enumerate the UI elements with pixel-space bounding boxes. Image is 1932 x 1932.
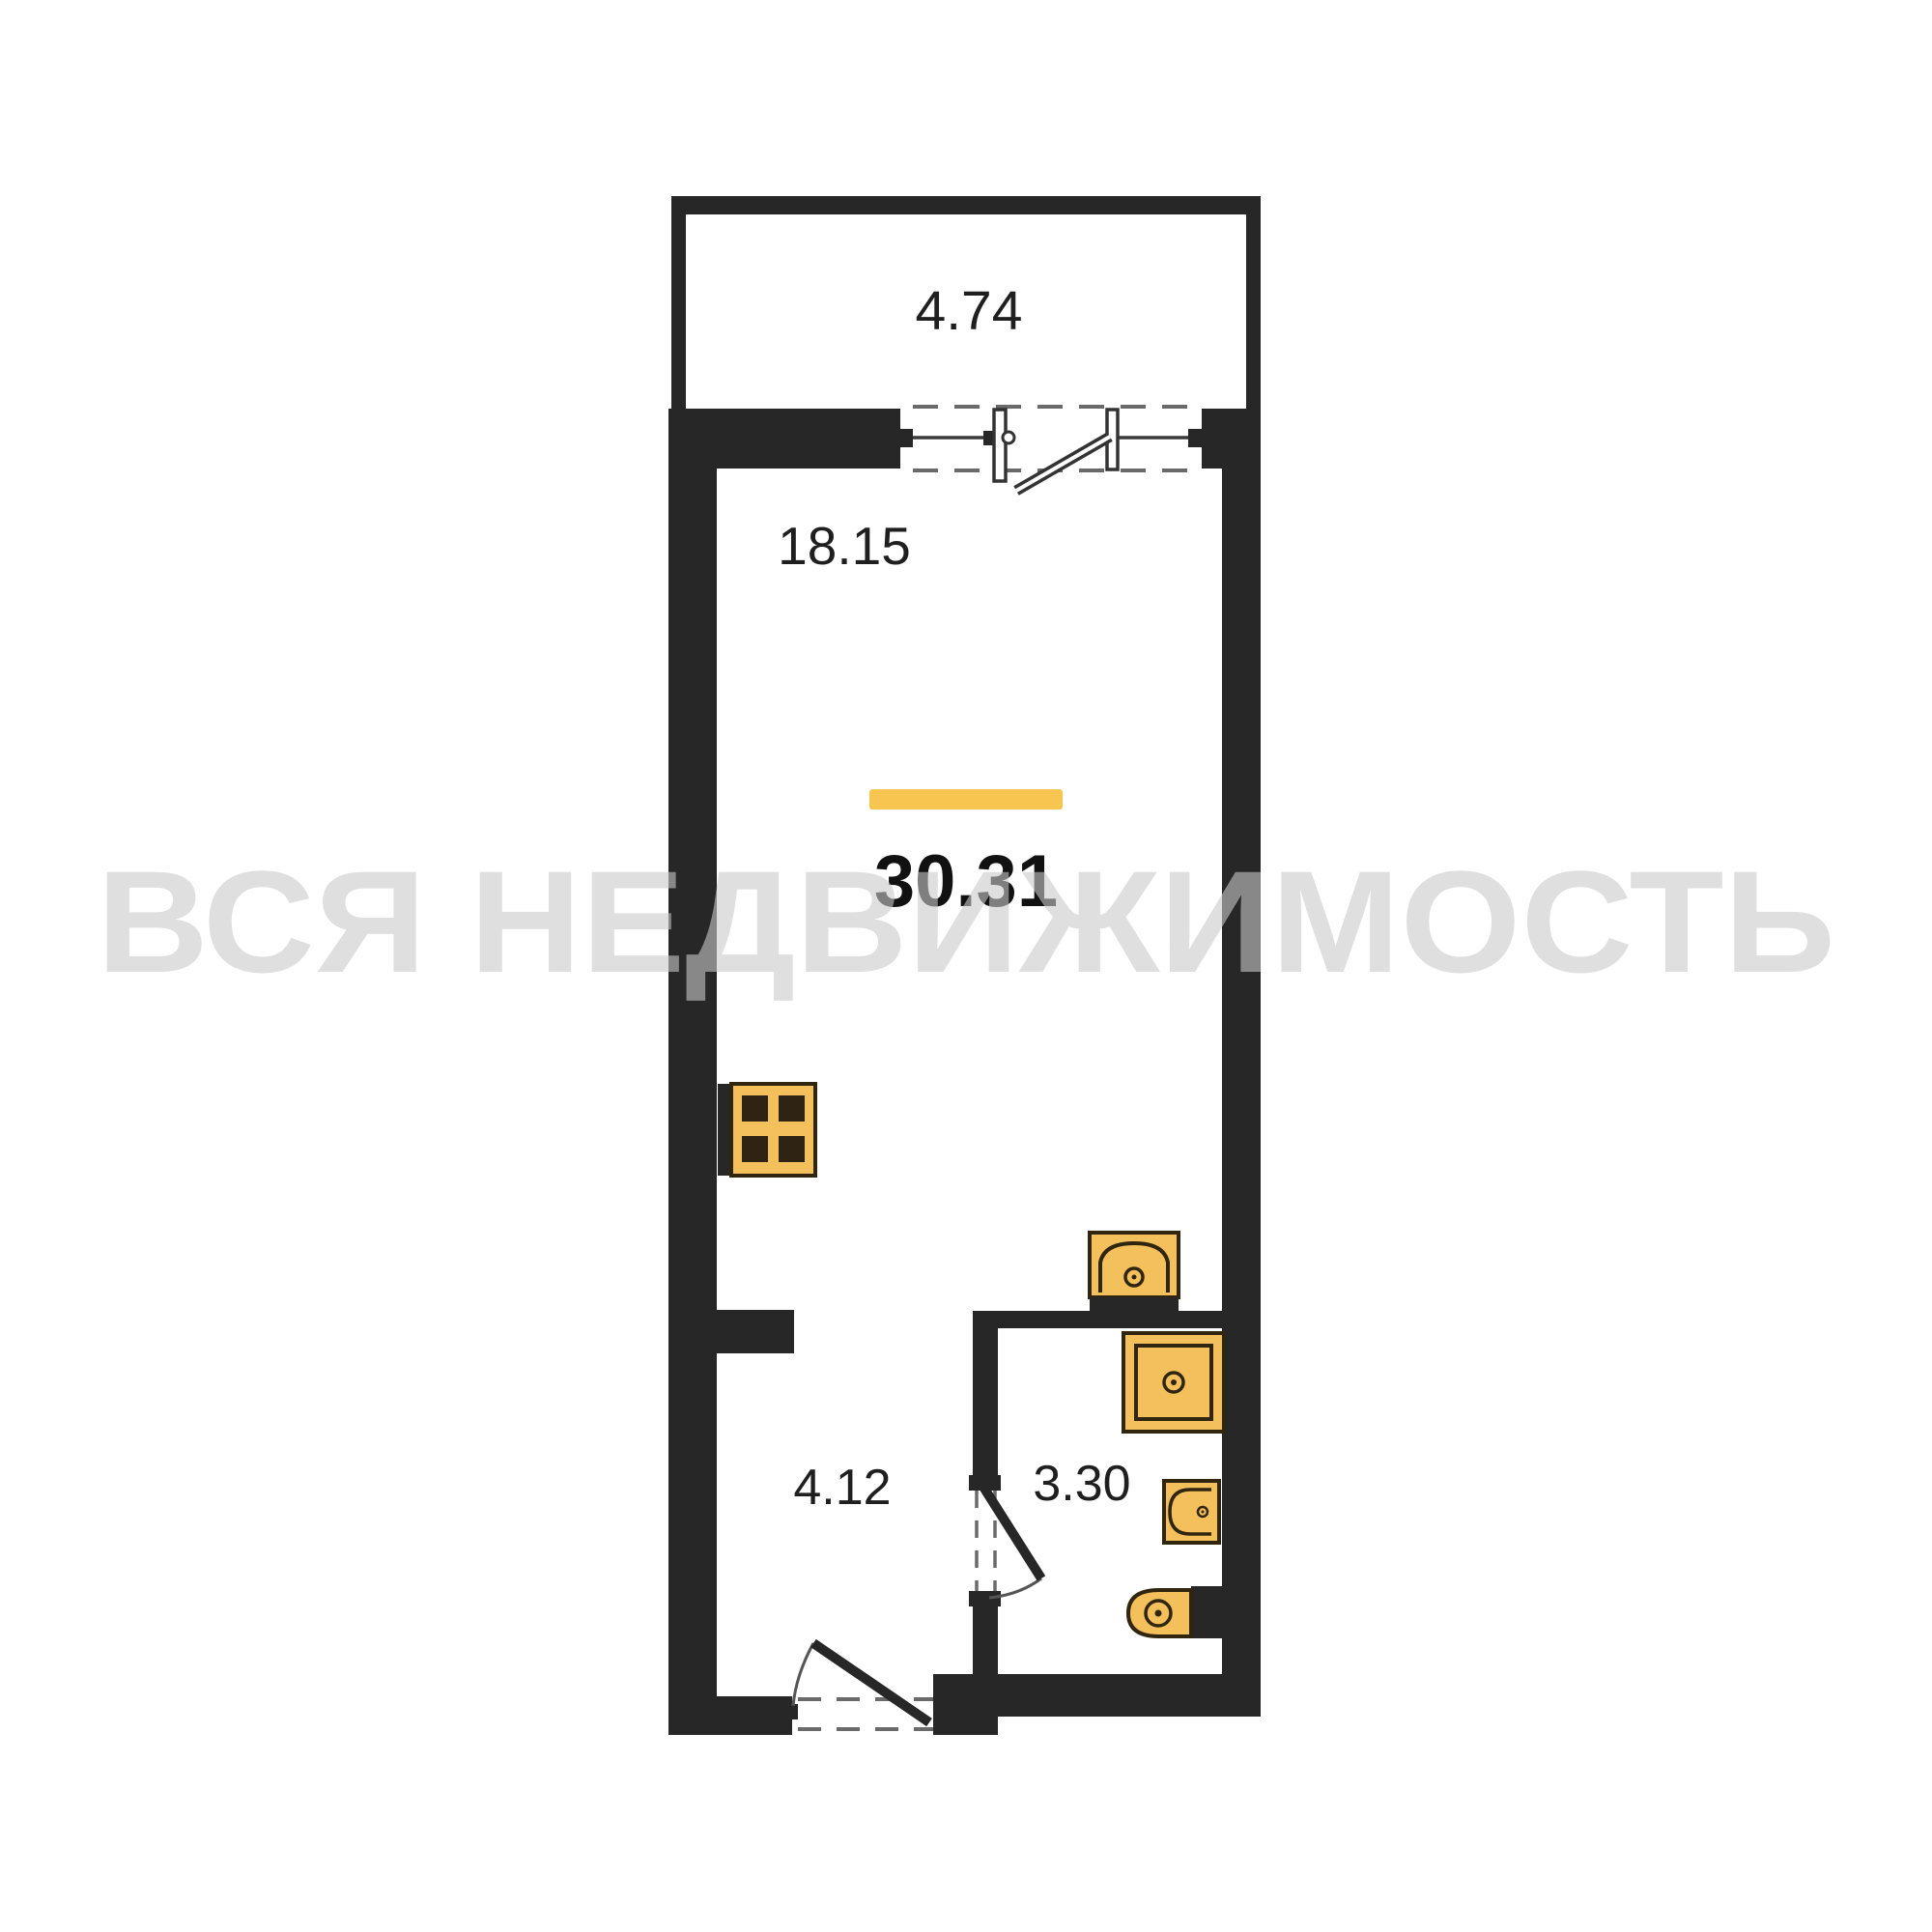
floorplan-drawing: 4.74 18.15 30.31 4.12 3.30 ВСЯ НЕДВИЖИМО… <box>0 0 1932 1932</box>
bathroom-top-wall <box>973 1311 1222 1328</box>
watermark-text: ВСЯ НЕДВИЖИМОСТЬ <box>97 840 1835 1003</box>
living-room-area-label: 18.15 <box>778 516 911 576</box>
window-left-jamb <box>900 429 913 447</box>
kitchen-sink-icon <box>1090 1233 1179 1311</box>
divider-stub-wall <box>717 1310 794 1353</box>
entrance-door-leaf <box>813 1643 929 1722</box>
washbasin-icon <box>1164 1481 1219 1543</box>
stove-burner <box>779 1095 805 1122</box>
window-frame-post-left <box>994 410 1006 481</box>
entrance-door-swing-arc <box>793 1643 813 1706</box>
right-wall <box>1222 409 1261 1717</box>
balcony-area-label: 4.74 <box>916 280 1023 342</box>
left-wall <box>668 409 717 1735</box>
toilet-tank <box>1191 1586 1222 1638</box>
shower-drain-dot <box>1171 1379 1177 1385</box>
kitchen-sink-counter-edge <box>1090 1297 1179 1311</box>
balcony-door-leaf-inner <box>1016 437 1110 491</box>
bathroom-bottom-wall <box>933 1674 1261 1717</box>
balcony-top-wall <box>671 196 1261 214</box>
toilet-bowl-dot <box>1155 1610 1162 1617</box>
window-handle <box>1003 432 1014 443</box>
washbasin-drain-dot <box>1202 1511 1205 1514</box>
entrance-left-jamb <box>784 1704 798 1719</box>
bathroom-door-bottom-jamb <box>969 1591 1001 1606</box>
bathroom-left-wall-upper <box>973 1311 998 1475</box>
kitchen-sink-drain-dot <box>1132 1275 1137 1280</box>
bathroom-door <box>977 1484 1041 1598</box>
stove-burner <box>742 1136 768 1162</box>
balcony-left-wall <box>671 196 686 411</box>
shower-icon <box>1123 1333 1224 1432</box>
bathroom-area-label: 3.30 <box>1033 1456 1130 1512</box>
stove-counter-edge <box>718 1084 731 1176</box>
window-right-jamb <box>1188 429 1202 447</box>
balcony-window-door <box>913 407 1188 491</box>
floorplan-page: 4.74 18.15 30.31 4.12 3.30 ВСЯ НЕДВИЖИМО… <box>0 0 1932 1932</box>
toilet-icon <box>1128 1586 1222 1638</box>
stove-burner <box>779 1136 805 1162</box>
stove-icon <box>718 1084 815 1176</box>
bottom-wall-left <box>668 1696 792 1735</box>
hallway-area-label: 4.12 <box>793 1460 891 1516</box>
balcony-right-wall <box>1246 196 1261 411</box>
accent-bar <box>869 789 1063 810</box>
stove-burner <box>742 1095 768 1122</box>
entrance-door <box>793 1643 933 1729</box>
